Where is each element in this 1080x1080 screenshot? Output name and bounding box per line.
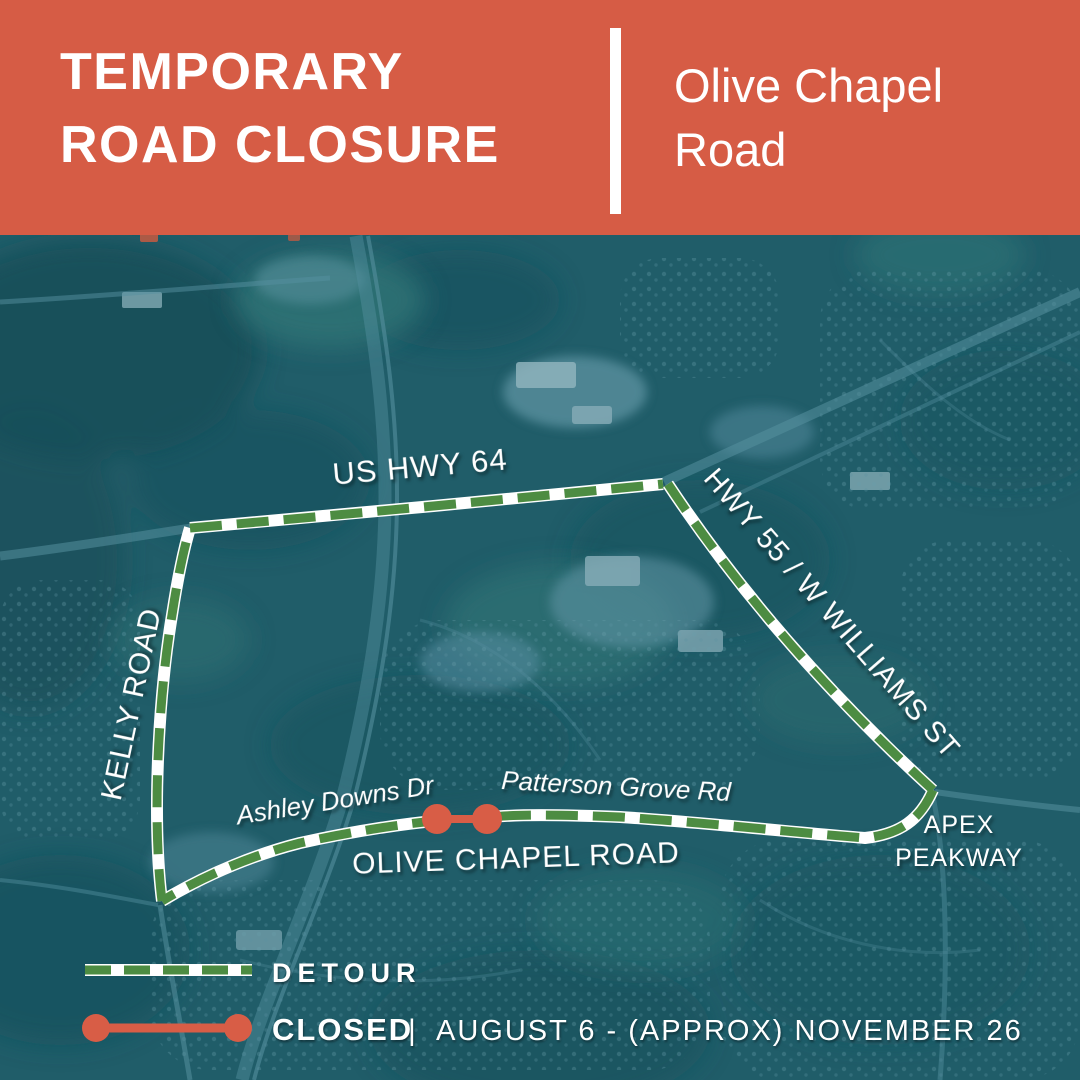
road-name-subtitle: Olive Chapel Road — [674, 54, 943, 182]
legend-closed-dates: AUGUST 6 - (APPROX) NOVEMBER 26 — [436, 1015, 1023, 1047]
legend-detour-label: DETOUR — [272, 958, 422, 988]
road-name-line1: Olive Chapel — [674, 54, 943, 118]
label-apex-peakway-line1: APEX — [924, 811, 995, 839]
legend-closed-label: CLOSED — [272, 1012, 413, 1047]
header-divider-bar — [610, 28, 621, 214]
label-apex-peakway-line2: PEAKWAY — [895, 844, 1023, 872]
closed-endpoint-west — [422, 804, 452, 834]
road-closure-poster: US HWY 64 HWY 55 / W WILLIAMS ST KELLY R… — [0, 0, 1080, 1080]
legend-divider: | — [408, 1014, 416, 1047]
header-banner: TEMPORARY ROAD CLOSURE Olive Chapel Road — [0, 0, 1080, 235]
poster-title: TEMPORARY ROAD CLOSURE — [60, 36, 500, 182]
poster-title-line1: TEMPORARY — [60, 36, 500, 109]
closed-endpoint-east — [472, 804, 502, 834]
poster-title-line2: ROAD CLOSURE — [60, 109, 500, 182]
road-name-line2: Road — [674, 118, 943, 182]
